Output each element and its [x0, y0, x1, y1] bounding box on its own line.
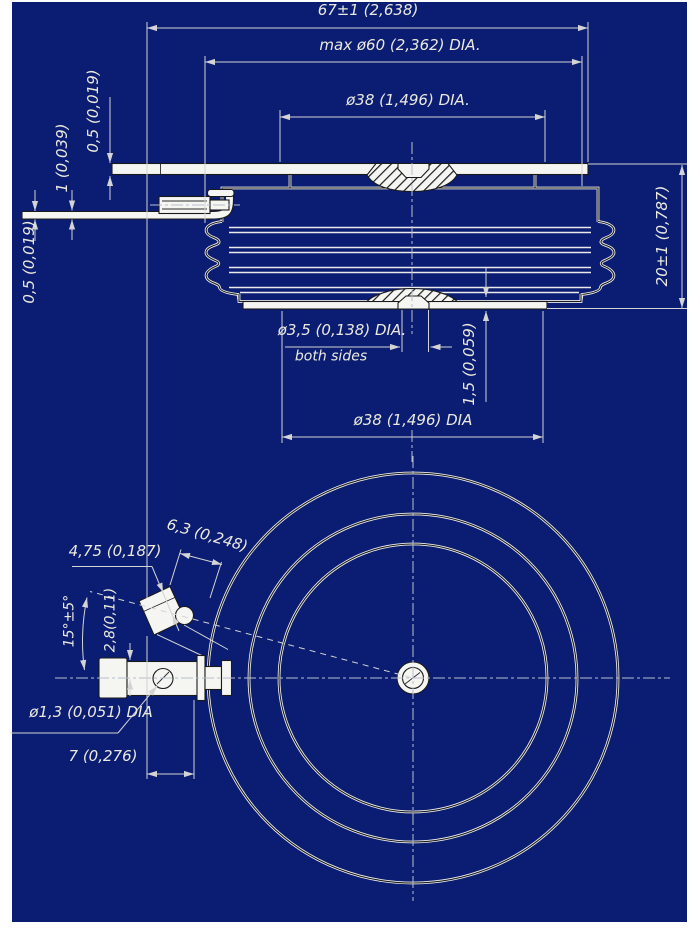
- ext-line-terminal-length-2: [210, 562, 222, 598]
- dim-terminal-angle-label: 15°±5°: [63, 595, 78, 647]
- dim-height-label: 20±1 (0,787): [655, 186, 671, 287]
- top-pole-plate: [112, 164, 588, 175]
- dim-strip-thickness-label: 0,5 (0,019): [22, 220, 38, 303]
- drawing-page: 67±1 (2,638) max ø60 (2,362) DIA. ø38 (1…: [0, 0, 700, 940]
- dim-projection-label: 7 (0,276): [69, 749, 138, 765]
- bottom-pole-plate: [243, 302, 547, 310]
- dim-wire-dia-label: ø1,3 (0,051) DIA: [29, 705, 152, 721]
- corrugation-left: [206, 222, 239, 302]
- dim-terminal-length-line: [180, 554, 222, 565]
- dim-terminal-width-label: 4,75 (0,187): [69, 544, 162, 560]
- dim-gate-hole-label: ø3,5 (0,138) DIA.: [278, 323, 407, 339]
- dim-recess-depth-label: 1,5 (0,059): [462, 322, 478, 405]
- fin-lines: [229, 228, 591, 293]
- dim-plate-thickness-label: 0,5 (0,019): [86, 69, 102, 152]
- gate-lead-side-view: [22, 190, 234, 220]
- gate-hole-note-label: both sides: [295, 350, 367, 365]
- ext-line-terminal-length-1: [170, 550, 181, 586]
- terminal-to-flange-line: [157, 635, 205, 658]
- dim-angle-arc: [83, 598, 88, 671]
- outline-drawing-svg: [0, 0, 700, 940]
- gate-wire-hook: [208, 190, 235, 197]
- corrugation-right-halo: [581, 222, 614, 302]
- dim-terminal-offset-label: 2,8(0,11): [104, 588, 119, 652]
- dim-body-dia-label: max ø60 (2,362) DIA.: [319, 38, 480, 54]
- dim-lead-thickness-label: 1 (0,039): [55, 124, 71, 193]
- corrugation-right: [581, 222, 614, 302]
- dim-pole-dia-bottom-label: ø38 (1,496) DIA: [354, 413, 473, 429]
- section-view: [22, 164, 614, 310]
- dim-pole-dia-top-label: ø38 (1,496) DIA.: [346, 93, 470, 109]
- dimensions: [10, 22, 687, 901]
- corrugation-left-halo: [206, 222, 239, 302]
- terminal-to-flange-line: [184, 625, 228, 650]
- arrow-terminal-width-1: [157, 583, 163, 593]
- dim-overall-width-label: 67±1 (2,638): [318, 3, 419, 19]
